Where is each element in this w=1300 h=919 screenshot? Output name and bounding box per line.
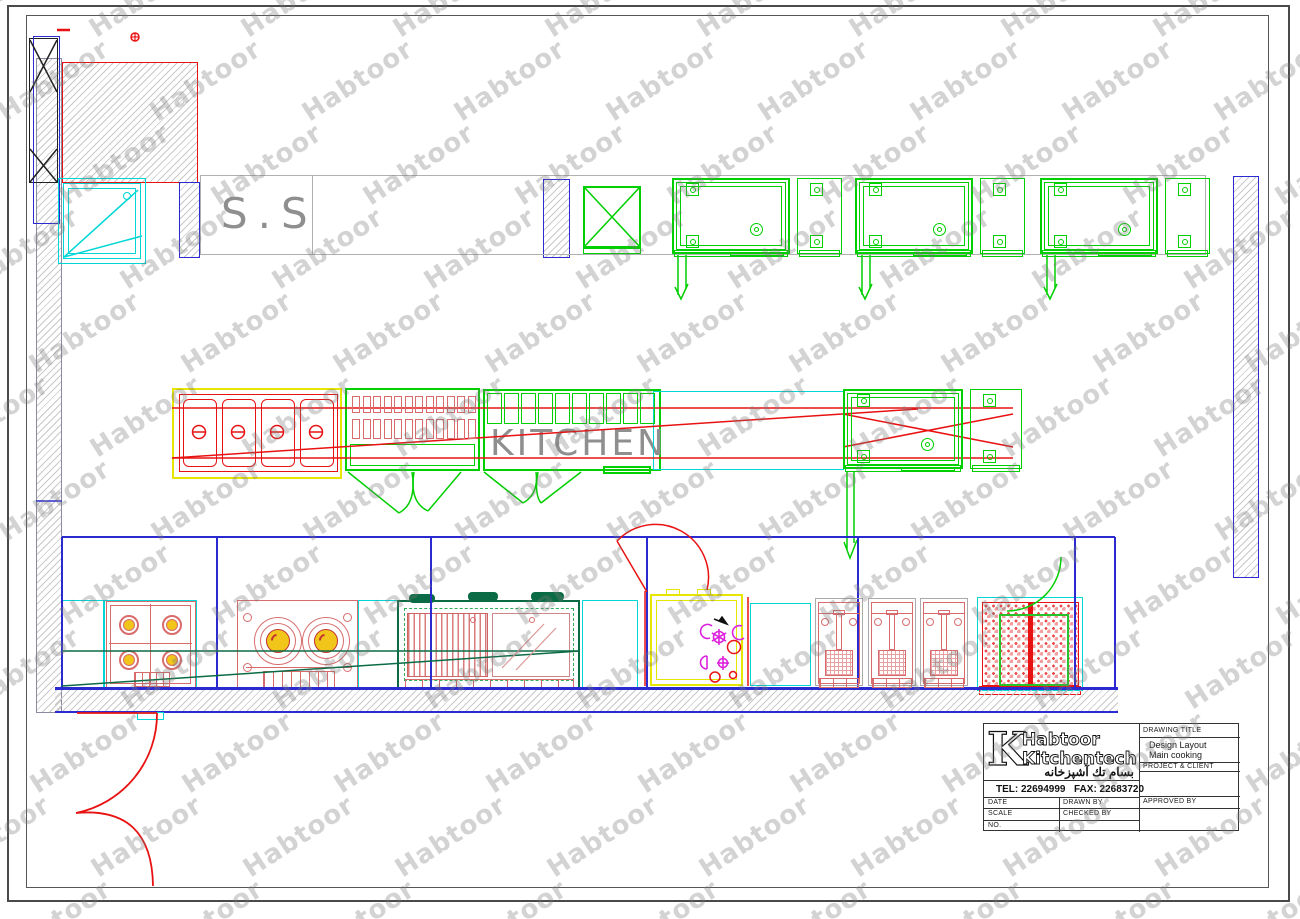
scale-label: SCALE: [988, 810, 1012, 817]
tray-pan: [373, 419, 381, 439]
extension-undershelf: [1167, 250, 1208, 257]
tray-pan: [394, 396, 402, 413]
tray-pan: [457, 396, 465, 413]
approved-by-label: APPROVED BY: [1143, 798, 1196, 805]
logo-k-letter: K: [987, 724, 1029, 776]
table-corner-circle: [987, 398, 993, 404]
tray-pan: [436, 396, 444, 413]
tray-pan: [363, 419, 371, 439]
table-corner-circle: [873, 239, 879, 245]
tray-pan: [394, 419, 402, 439]
table-corner-circle: [997, 239, 1003, 245]
table-corner-circle: [861, 398, 867, 404]
company-name-line1: Habtoor: [1022, 730, 1100, 750]
tray-pan: [363, 396, 371, 413]
tray-pan: [436, 419, 444, 439]
tb-hline: [1139, 796, 1240, 797]
tray-pan: [426, 396, 434, 413]
fryer-basket: [930, 650, 958, 676]
fryer-screw: [954, 618, 962, 626]
fryer-screw: [849, 618, 857, 626]
title-block: K Habtoor Kitchentech بسام تك آشپزخانه T…: [983, 723, 1239, 831]
table-undershelf-rail: [730, 252, 784, 256]
drawing-title-line1: Design Layout: [1149, 740, 1207, 750]
fax-value: FAX: 22683720: [1074, 784, 1144, 795]
fryer-screw: [874, 618, 882, 626]
grid-cell: [487, 393, 502, 424]
tb-hline: [984, 820, 1139, 821]
table-corner-circle: [814, 239, 820, 245]
tel-value: TEL: 22694999: [996, 784, 1066, 795]
tb-hline: [984, 797, 1139, 798]
drawing-title-line2: Main cooking: [1149, 750, 1202, 760]
tb-hline: [1139, 737, 1240, 738]
table-corner-circle: [1058, 187, 1064, 193]
extension-undershelf: [799, 250, 840, 257]
tray-pan: [373, 396, 381, 413]
table-drain-dot: [754, 227, 759, 232]
table-corner-circle: [873, 187, 879, 193]
grid-cell: [504, 393, 519, 424]
fryer-screw: [926, 618, 934, 626]
tray-pan: [447, 419, 455, 439]
drawing-sheet: S.S KITCHEN: [0, 0, 1300, 919]
no-label: NO.: [988, 822, 1001, 829]
table-drain-dot: [1122, 227, 1127, 232]
tray-pan: [426, 419, 434, 439]
tray-pan: [384, 396, 392, 413]
table-corner-circle: [690, 239, 696, 245]
grid-cell: [555, 393, 570, 424]
tray-pan: [415, 396, 423, 413]
tray-pan: [468, 396, 476, 413]
table-undershelf-rail: [901, 467, 955, 471]
tb-hline: [1139, 771, 1240, 772]
tray-pan: [457, 419, 465, 439]
tray-pan: [384, 419, 392, 439]
tb-vline-main: [1139, 724, 1140, 832]
grid-cell: [521, 393, 536, 424]
table-drain-dot: [937, 227, 942, 232]
table-corner-circle: [1182, 187, 1188, 193]
company-name-arabic: بسام تك آشپزخانه: [1024, 765, 1134, 779]
project-client-label: PROJECT & CLIENT: [1143, 763, 1214, 770]
worktable-extension: [970, 389, 1022, 469]
table-corner-circle: [987, 454, 993, 460]
tray-pan: [447, 396, 455, 413]
date-label: DATE: [988, 799, 1007, 806]
table-undershelf-rail: [913, 252, 967, 256]
extension-undershelf: [982, 250, 1023, 257]
fryer-handle-bar: [889, 614, 895, 650]
fryer-base: [872, 678, 912, 688]
tray-pan: [405, 419, 413, 439]
tb-hline: [984, 808, 1139, 809]
fryer-handle-bar: [836, 614, 842, 650]
extension-undershelf: [972, 465, 1020, 472]
tb-hline: [984, 780, 1139, 781]
table-corner-circle: [997, 187, 1003, 193]
grid-cell: [606, 393, 621, 424]
drawing-title-label: DRAWING TITLE: [1143, 727, 1201, 734]
grid-cell: [572, 393, 587, 424]
fryer-base: [819, 678, 859, 688]
table-drain-dot: [925, 442, 930, 447]
table-corner-circle: [1058, 239, 1064, 245]
grid-cell: [538, 393, 553, 424]
tb-vline-left: [1059, 797, 1060, 832]
tray-pan: [468, 419, 476, 439]
drawn-by-label: DRAWN BY: [1063, 799, 1103, 806]
tray-pan: [405, 396, 413, 413]
table-undershelf-rail: [1098, 252, 1152, 256]
tray-pan: [415, 419, 423, 439]
table-corner-circle: [814, 187, 820, 193]
tray-pan: [352, 419, 360, 439]
fryer-base: [924, 678, 964, 688]
tray-pan: [352, 396, 360, 413]
checked-by-label: CHECKED BY: [1063, 810, 1112, 817]
grid-cell: [623, 393, 638, 424]
table-corner-circle: [1182, 239, 1188, 245]
fryer-handle-bar: [941, 614, 947, 650]
tb-hline: [1139, 808, 1240, 809]
fryer-basket: [878, 650, 906, 676]
fryer-basket: [825, 650, 853, 676]
grid-cell: [589, 393, 604, 424]
table-corner-circle: [690, 187, 696, 193]
fryer-screw: [902, 618, 910, 626]
fryer-screw: [821, 618, 829, 626]
table-corner-circle: [861, 454, 867, 460]
grid-cell: [640, 393, 655, 424]
